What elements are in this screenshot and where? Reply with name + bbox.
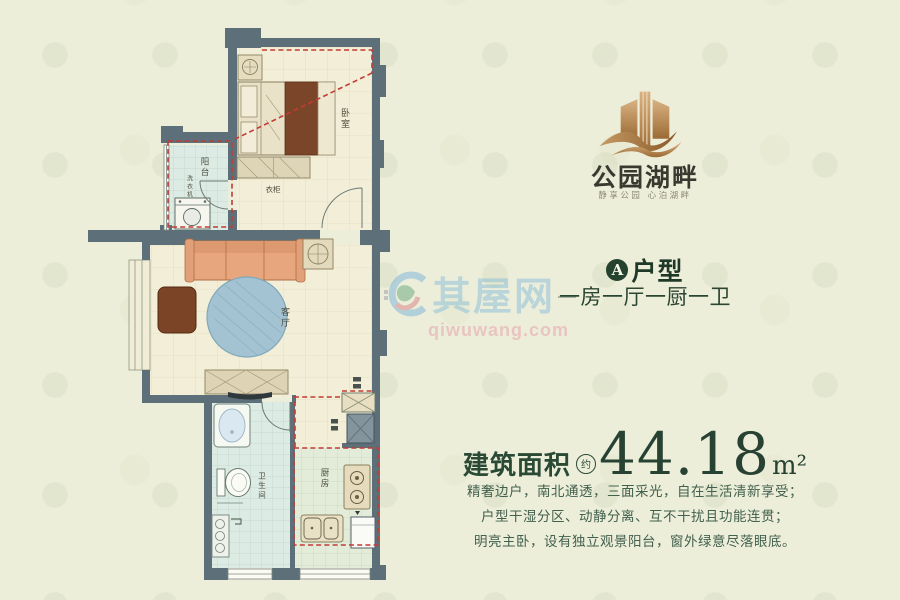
bedroom-label: 卧室 (339, 107, 350, 130)
bed (238, 82, 335, 155)
floorplan: 卧室 衣柜 阳台 洗衣机 客厅 卫生间 厨房 (85, 25, 395, 590)
unit-layout: 一房一厅一厨一卫 (495, 281, 795, 311)
side-table-lamp (303, 239, 333, 269)
description: 精奢边户，南北通透，三面采光，自在生活清新享受； 户型干湿分区、动静分离、互不干… (450, 480, 820, 555)
stove (344, 465, 370, 509)
kitchen-sink (301, 515, 343, 542)
flyer-page: 卧室 衣柜 阳台 洗衣机 客厅 卫生间 厨房 其屋网 qiwuwang.com (0, 0, 900, 600)
sofa (185, 239, 305, 282)
unit-type-badge: A (606, 259, 628, 281)
round-rug (207, 277, 287, 357)
fridge (351, 511, 375, 548)
area-label: 建筑面积 (463, 445, 571, 482)
utility-shaft (342, 393, 375, 443)
kitchen-label: 厨房 (319, 468, 329, 489)
bay-window (129, 260, 150, 370)
bathtub (214, 404, 250, 447)
watermark-site-url: qiwuwang.com (428, 320, 584, 341)
area-unit: m² (772, 451, 807, 481)
wardrobe (237, 157, 310, 178)
area-value: 44.18 (599, 425, 770, 483)
washing-machine (175, 198, 210, 229)
balcony-label: 阳台 (199, 157, 209, 178)
armchair (158, 287, 196, 333)
brand-tagline: 静享公园 心泊湖畔 (555, 189, 735, 201)
description-line-2: 户型干湿分区、动静分离、互不干扰且功能连贯； (450, 505, 820, 530)
area-approx-circle: 约 (576, 454, 596, 474)
nightstand (238, 55, 262, 80)
description-line-3: 明亮主卧，设有独立观景阳台，窗外绿意尽落眼底。 (450, 530, 820, 555)
bathroom-label: 卫生间 (257, 472, 266, 501)
area-row: 建筑面积 约 44.18 m² (460, 425, 810, 483)
living-label: 客厅 (279, 306, 290, 329)
brand-logo-icon (590, 84, 700, 160)
wardrobe-label: 衣柜 (266, 184, 281, 194)
washer-label: 洗衣机 (186, 174, 193, 199)
description-line-1: 精奢边户，南北通透，三面采光，自在生活清新享受； (450, 480, 820, 505)
